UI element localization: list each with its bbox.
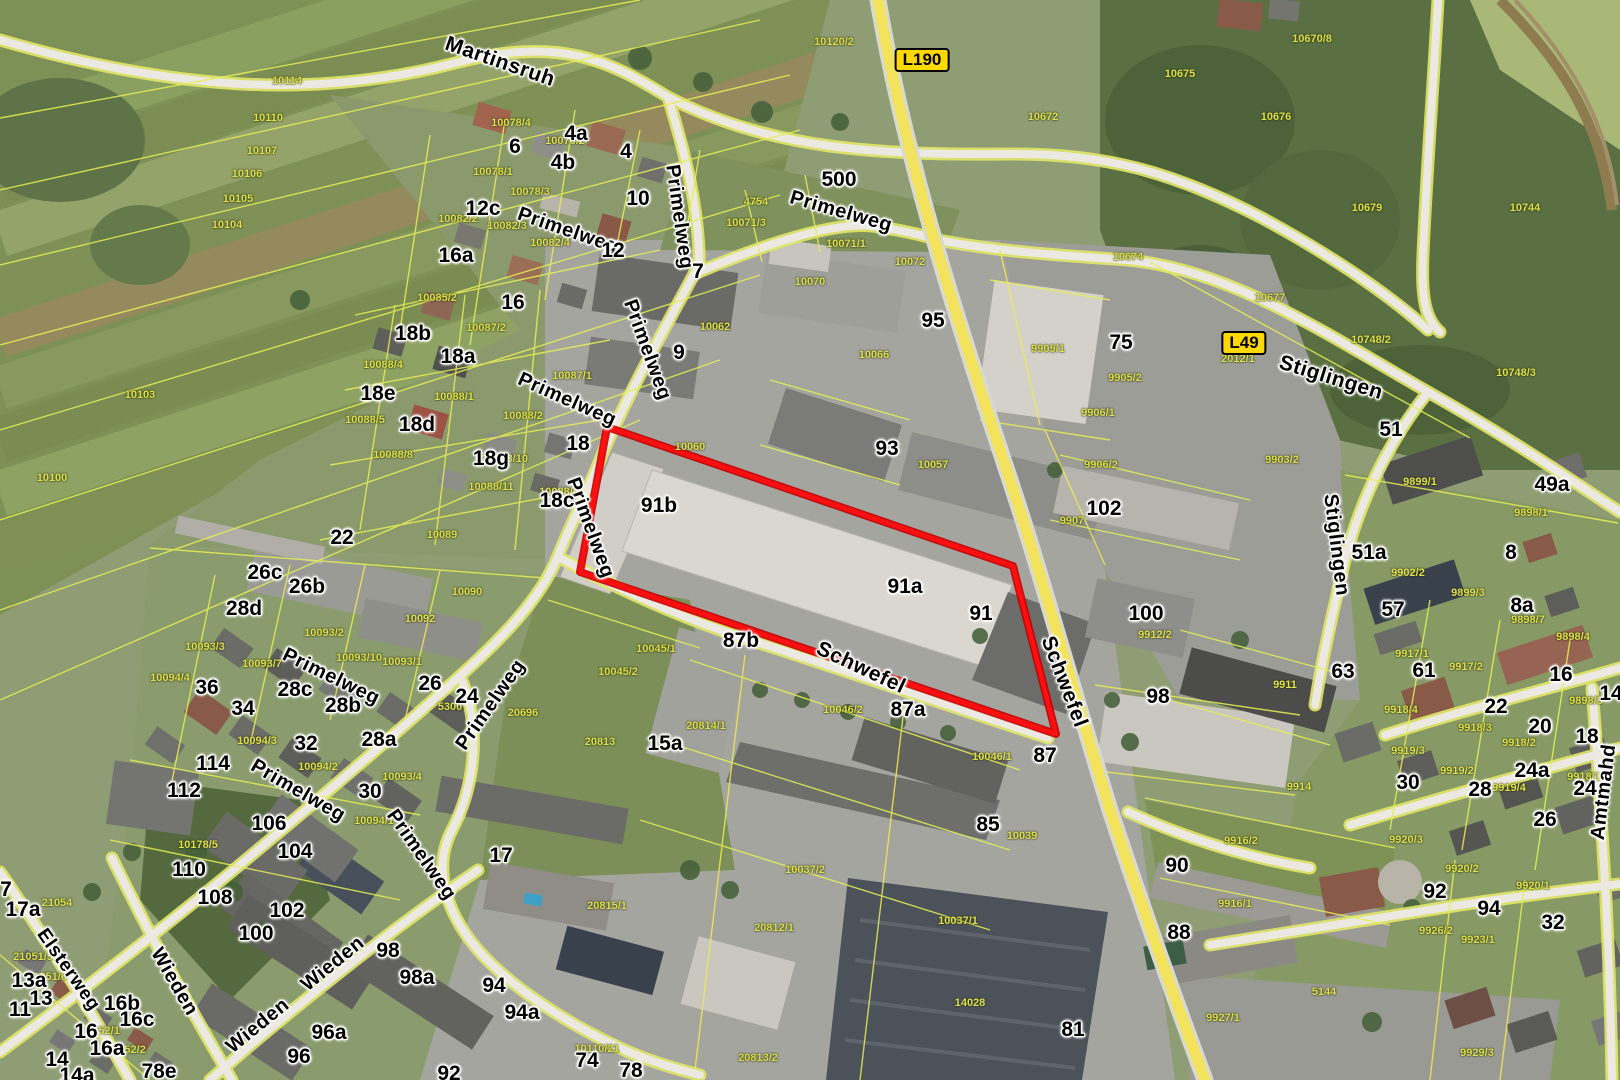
aerial-map-canvas[interactable]: 1011410110101071010610105101041010310100…: [0, 0, 1620, 1080]
terrain-layer: [0, 0, 1620, 1080]
